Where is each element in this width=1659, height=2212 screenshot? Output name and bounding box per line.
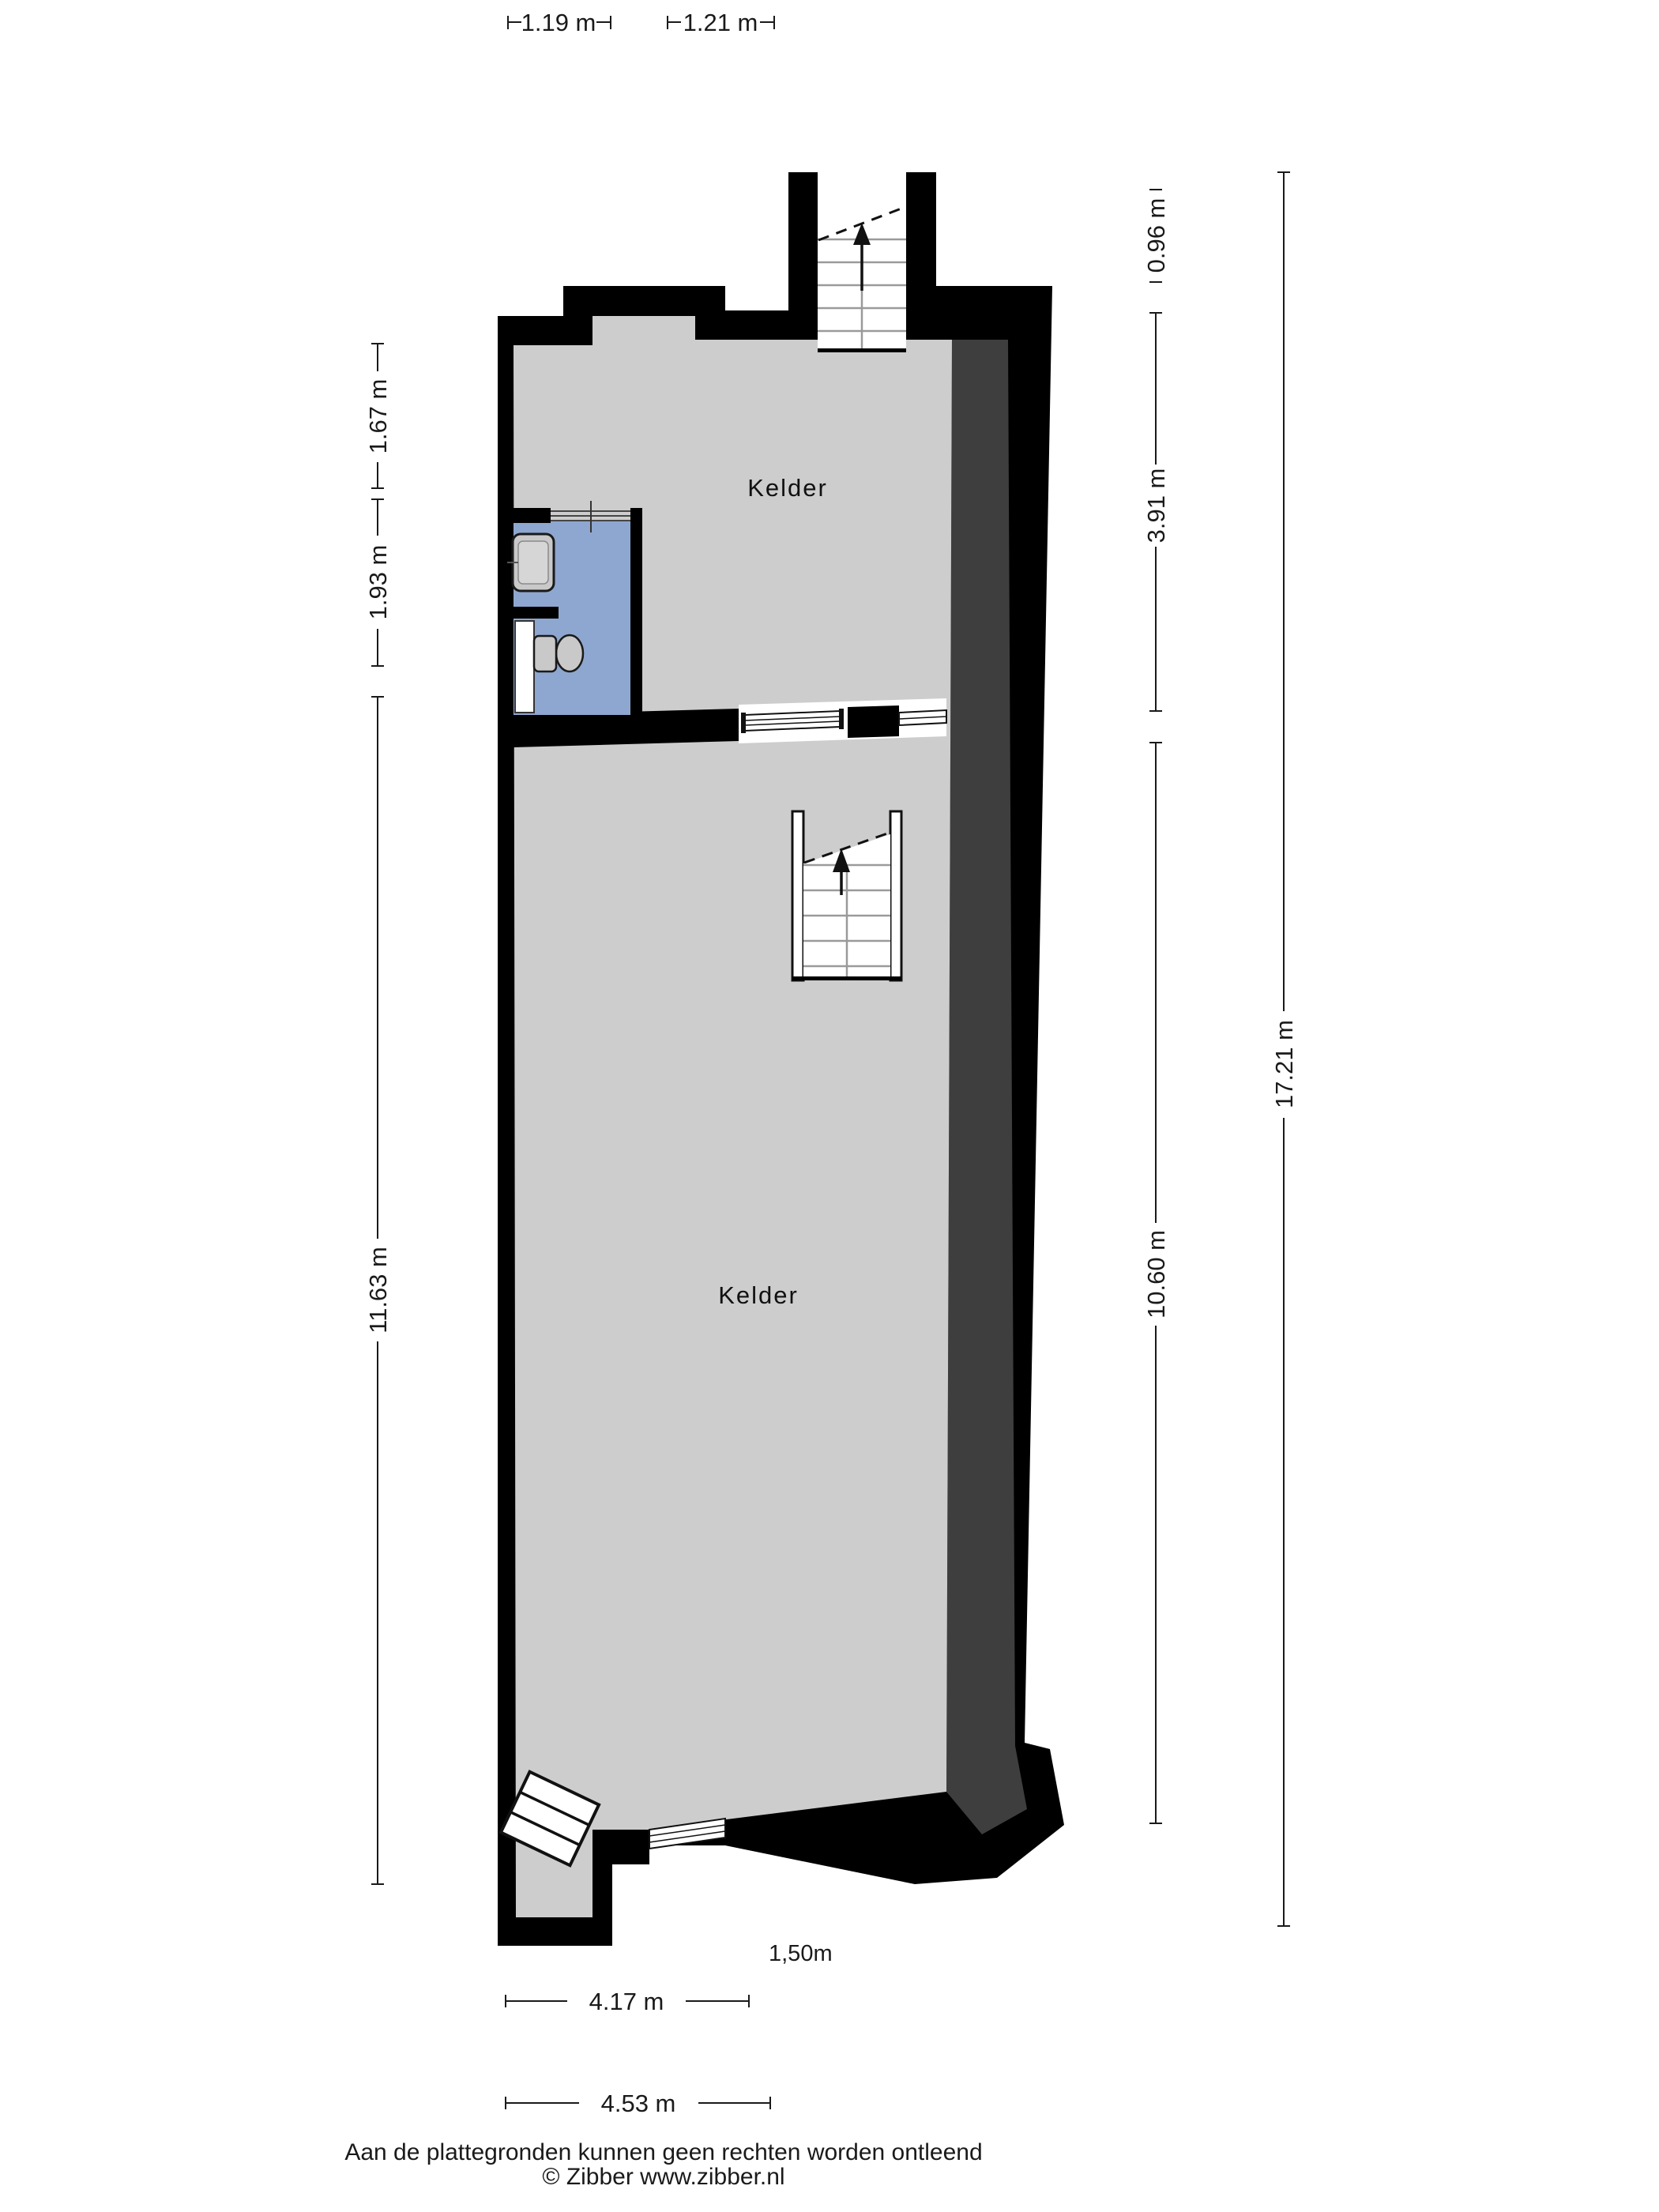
svg-text:4.17 m: 4.17 m — [589, 1988, 664, 2015]
svg-text:1.93 m: 1.93 m — [364, 545, 392, 620]
room-label-kelder-upper: Kelder — [747, 474, 828, 502]
dimension-bottom-1: 4.17 m — [506, 1988, 749, 2015]
bathroom-wall-right — [630, 508, 642, 715]
dimension-left-3: 11.63 m — [364, 697, 392, 1884]
dimension-left-1: 1.67 m — [364, 344, 392, 488]
footer-copyright: © Zibber www.zibber.nl — [542, 2164, 784, 2190]
svg-text:1.67 m: 1.67 m — [364, 379, 392, 454]
dimension-right-3: 10.60 m — [1142, 743, 1170, 1823]
footer-disclaimer: Aan de plattegronden kunnen geen rechten… — [344, 2139, 982, 2165]
dimension-right-4: 17.21 m — [1270, 172, 1298, 1926]
svg-text:1.19 m: 1.19 m — [521, 9, 596, 36]
dimension-bottom-2: 4.53 m — [506, 2090, 770, 2117]
divider-wall-pillar — [848, 705, 899, 738]
sink-icon — [507, 534, 554, 591]
floorplan-canvas: Kelder Kelder 1,50m 1.19 m 1.21 m 1.67 m… — [0, 0, 1659, 2212]
dimension-top-2: 1.21 m — [668, 9, 774, 36]
svg-text:0.96 m: 0.96 m — [1142, 198, 1170, 273]
dimension-right-2: 3.91 m — [1142, 313, 1170, 711]
height-marker-label: 1,50m — [769, 1941, 833, 1966]
svg-text:4.53 m: 4.53 m — [601, 2090, 676, 2117]
interior-window-icon — [899, 710, 946, 725]
svg-text:11.63 m: 11.63 m — [364, 1247, 392, 1334]
svg-text:1.21 m: 1.21 m — [683, 9, 758, 36]
bathroom-wall-top — [513, 508, 551, 523]
dimension-top-1: 1.19 m — [508, 9, 611, 36]
room-label-kelder-lower: Kelder — [718, 1281, 799, 1309]
dimension-right-1: 0.96 m — [1142, 190, 1170, 282]
dimension-left-2: 1.93 m — [364, 499, 392, 666]
floorplan-page: Kelder Kelder 1,50m 1.19 m 1.21 m 1.67 m… — [0, 0, 1659, 2212]
svg-text:3.91 m: 3.91 m — [1142, 468, 1170, 544]
svg-text:17.21 m: 17.21 m — [1270, 1020, 1298, 1108]
upper-stairs — [818, 167, 906, 352]
bathroom-wall-stub — [511, 607, 559, 619]
door-leaf-icon — [515, 621, 534, 713]
svg-text:10.60 m: 10.60 m — [1142, 1230, 1170, 1319]
